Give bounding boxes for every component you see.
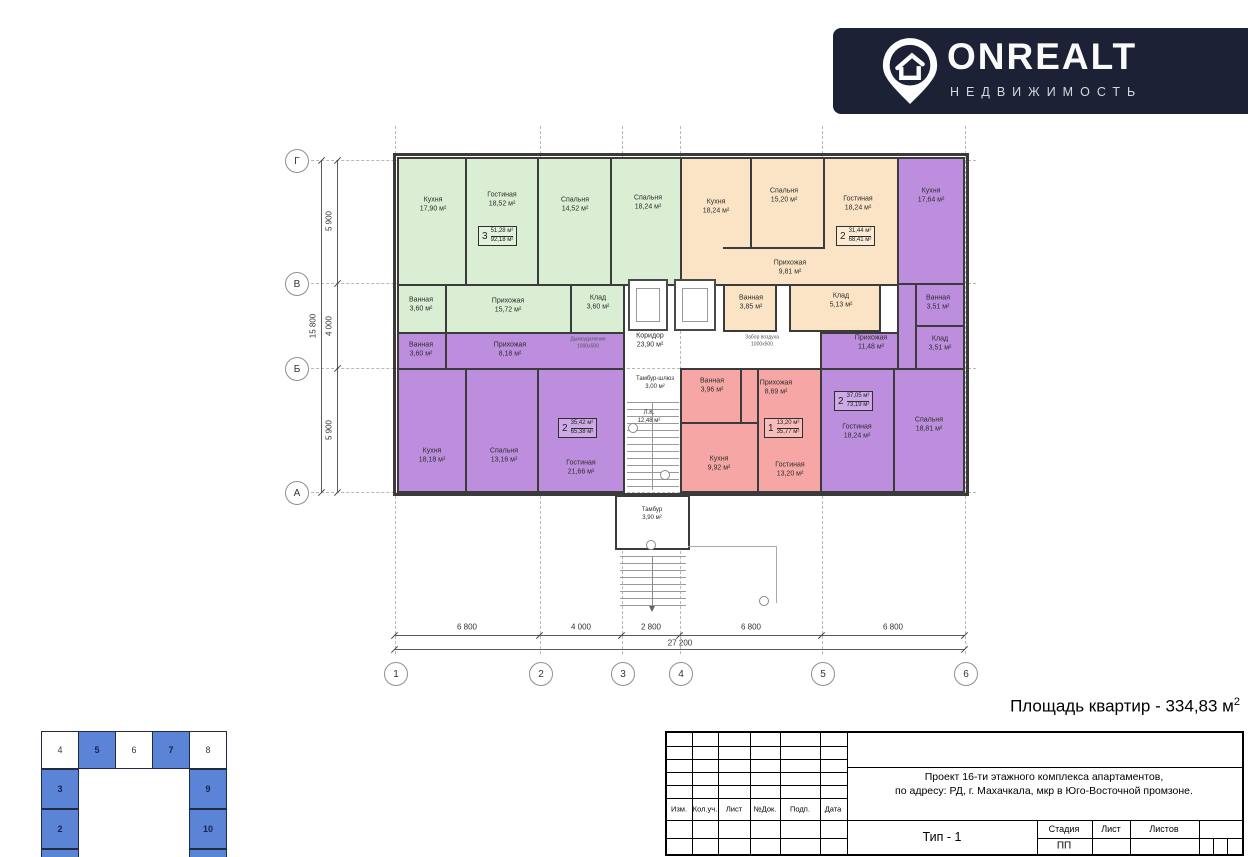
wall: [723, 247, 825, 249]
room-label: Ванная 3,96 м²: [700, 377, 724, 396]
wall: [537, 157, 539, 284]
project-title-line1: Проект 16-ти этажного комплекса апартаме…: [925, 771, 1163, 783]
minimap-cell-2: 2: [41, 809, 79, 849]
dimension-value: 6 800: [883, 623, 903, 632]
room-label: Клад 5,13 м²: [830, 292, 853, 311]
area-fraction: 51,28 м² 92,18 м²: [491, 228, 514, 244]
living-area: 35,42 м²: [571, 420, 594, 429]
brand-banner: ONREALT НЕДВИЖИМОСТЬ: [833, 28, 1248, 114]
room-label: Ванная 3,51 м²: [926, 294, 950, 313]
apartment-badge-purple-right: 2 37,05 м² 73,19 м²: [834, 391, 873, 411]
tb-header-izm: Изм.: [671, 805, 687, 814]
dimension-total: 15 800: [309, 314, 318, 338]
floor-plan-page: ONREALT НЕДВИЖИМОСТЬ: [0, 0, 1248, 857]
room-label: Тамбур-шлюз 3,00 м²: [636, 375, 674, 391]
total-area-text: Площадь квартир - 334,83 м: [1010, 697, 1234, 716]
total-area: 65,38 м²: [571, 429, 594, 437]
living-area: 31,44 м²: [849, 228, 872, 237]
rooms-count: 2: [838, 396, 844, 407]
axis-col-label: 5: [811, 662, 835, 686]
wall: [740, 368, 742, 424]
axis-col-label: 6: [954, 662, 978, 686]
total-area: 92,18 м²: [491, 237, 514, 245]
tb-line: [1130, 820, 1131, 854]
rooms-count: 1: [768, 423, 774, 434]
wall: [750, 157, 752, 247]
tb-header-data: Дата: [825, 805, 842, 814]
dimension-line: [321, 160, 322, 492]
tb-header-ndok: №Док.: [754, 805, 777, 814]
tb-line: [1199, 820, 1200, 854]
minimap-cell-8: 8: [189, 731, 227, 769]
room-label: Ванная 3,60 м²: [409, 296, 433, 315]
minimap-cell-10: 10: [189, 809, 227, 849]
axis-row-label: В: [285, 272, 309, 296]
rooms-count: 3: [482, 231, 488, 242]
axis-row-label: А: [285, 481, 309, 505]
room-label: Гостиная 18,24 м²: [842, 423, 871, 442]
dimension-value: 5 900: [325, 211, 334, 231]
plan-type-label: Тип - 1: [923, 830, 962, 844]
room-label: Кухня 17,90 м²: [420, 196, 447, 215]
entrance-canopy: [688, 546, 777, 603]
area-fraction: 37,05 м² 73,19 м²: [847, 393, 870, 409]
room-label: Прихожая 8,69 м²: [760, 379, 792, 398]
tb-line: [692, 733, 693, 854]
air-intake-note: Забор воздуха 1000х500: [745, 335, 779, 348]
room-label: Спальня 18,81 м²: [915, 416, 943, 435]
tb-line: [667, 820, 1242, 821]
entrance-arrow-icon: [649, 606, 655, 612]
dimension-line: [337, 160, 338, 492]
tb-line: [667, 798, 847, 799]
room-label: Ванная 3,85 м²: [739, 294, 763, 313]
minimap-cell-4: 4: [41, 731, 79, 769]
dimension-value: 2 800: [641, 623, 661, 632]
room-label: Коридор 23,90 м²: [636, 332, 664, 351]
tb-header-sheet: Лист: [1101, 824, 1121, 834]
dimension-value: 6 800: [741, 623, 761, 632]
wall: [897, 283, 965, 285]
axis-row-label: Г: [285, 149, 309, 173]
minimap-cell-9: 9: [189, 769, 227, 809]
apartment-badge-red: 1 13,20 м² 35,77 м²: [764, 418, 803, 438]
total-area-label: Площадь квартир - 334,83 м2: [960, 696, 1240, 717]
tb-line: [847, 767, 1242, 768]
area-fraction: 13,20 м² 35,77 м²: [777, 420, 800, 436]
room-label: Спальня 14,52 м²: [561, 196, 589, 215]
tb-header-podp: Подп.: [790, 805, 810, 814]
room-label: Кухня 9,92 м²: [708, 455, 731, 474]
stair-marker: [628, 423, 638, 433]
tb-line: [750, 733, 751, 854]
wall: [823, 157, 825, 247]
dimension-value: 5 900: [325, 420, 334, 440]
dimension-value: 6 800: [457, 623, 477, 632]
room-label: Спальня 18,24 м²: [634, 194, 662, 213]
room-label: Клад 3,51 м²: [929, 335, 952, 354]
entrance-marker: [759, 596, 769, 606]
entrance-marker: [646, 540, 656, 550]
tb-line: [1227, 838, 1228, 854]
room-label: Прихожая 11,48 м²: [855, 334, 887, 353]
room-label: Клад 3,60 м²: [587, 294, 610, 313]
room-label: Спальня 13,16 м²: [490, 447, 518, 466]
axis-row-label: Б: [285, 357, 309, 381]
smoke-exhaust-note: Дымоудаление 1000х500: [570, 337, 605, 350]
tb-line: [667, 785, 847, 786]
entrance-axis-line: [652, 556, 653, 606]
tb-header-stage: Стадия: [1049, 824, 1080, 834]
room-label: Спальня 15,20 м²: [770, 187, 798, 206]
room-label: Л.К. 12,48 м²: [638, 409, 661, 425]
area-fraction: 31,44 м² 68,41 м²: [849, 228, 872, 244]
dimension-total: 27 200: [668, 639, 692, 648]
living-area: 37,05 м²: [847, 393, 870, 402]
wall: [445, 284, 447, 334]
entrance-steps: [620, 556, 686, 606]
apartment-badge-orange: 2 31,44 м² 68,41 м²: [836, 226, 875, 246]
minimap-cell-partial: [41, 849, 79, 857]
total-area-sup: 2: [1234, 696, 1240, 708]
brand-name: ONREALT: [947, 36, 1137, 78]
axis-col-label: 1: [384, 662, 408, 686]
room-label: Кухня 18,24 м²: [703, 198, 730, 217]
wall: [465, 157, 467, 284]
stair-marker: [660, 470, 670, 480]
tb-line: [1037, 838, 1242, 839]
elevator-car: [682, 288, 708, 322]
tb-line: [1213, 838, 1214, 854]
axis-col-label: 3: [611, 662, 635, 686]
minimap-cell-3: 3: [41, 769, 79, 809]
wall: [757, 368, 759, 493]
axis-col-label: 4: [669, 662, 693, 686]
room-label: Прихожая 9,81 м²: [774, 259, 806, 278]
room-label: Гостиная 13,20 м²: [775, 461, 804, 480]
tb-line: [667, 772, 847, 773]
axis-col-label: 2: [529, 662, 553, 686]
room-label: Прихожая 8,18 м²: [494, 341, 526, 360]
room-label: Ванная 3,60 м²: [409, 341, 433, 360]
rooms-count: 2: [562, 423, 568, 434]
minimap-cell-6: 6: [115, 731, 153, 769]
apartment-badge-green: 3 51,28 м² 92,18 м²: [478, 226, 517, 246]
room-label: Гостиная 18,52 м²: [487, 191, 516, 210]
minimap-cell-5: 5: [78, 731, 116, 769]
area-fraction: 35,42 м² 65,38 м²: [571, 420, 594, 436]
elevator-shaft: [628, 279, 668, 331]
dimension-line: [395, 649, 965, 650]
stage-value: ПП: [1057, 841, 1071, 852]
wall: [610, 157, 612, 284]
tb-line: [1092, 820, 1093, 854]
tb-line: [718, 733, 719, 854]
rooms-count: 2: [840, 231, 846, 242]
tb-header-sheets: Листов: [1149, 824, 1178, 834]
house-pin-icon: [879, 36, 941, 106]
tb-header-koluch: Кол.уч.: [693, 805, 718, 814]
room-label: Гостиная 21,66 м²: [566, 459, 595, 478]
tb-header-list: Лист: [726, 805, 742, 814]
wall: [570, 284, 572, 334]
tb-line: [780, 733, 781, 854]
minimap-cell-partial: [189, 849, 227, 857]
minimap-cell-7: 7: [152, 731, 190, 769]
room-label: Прихожая 15,72 м²: [492, 297, 524, 316]
apartment-green-top: [397, 157, 682, 286]
tb-line: [667, 759, 847, 760]
wall: [445, 332, 447, 370]
total-area: 73,19 м²: [847, 402, 870, 410]
tb-line: [667, 746, 847, 747]
total-area: 68,41 м²: [849, 237, 872, 245]
living-area: 13,20 м²: [777, 420, 800, 429]
tb-line: [667, 838, 847, 839]
dimension-value: 4 000: [571, 623, 591, 632]
room-label: Кухня 18,18 м²: [419, 447, 446, 466]
room-label: Тамбур 3,90 м²: [642, 506, 662, 522]
total-area: 35,77 м²: [777, 429, 800, 437]
wall: [893, 368, 895, 493]
elevator-shaft: [674, 279, 716, 331]
apartment-badge-purple-left: 2 35,42 м² 65,38 м²: [558, 418, 597, 438]
title-block: Изм. Кол.уч. Лист №Док. Подп. Дата Проек…: [665, 731, 1244, 856]
wall: [915, 325, 965, 327]
wall: [465, 368, 467, 493]
tb-line: [1037, 820, 1038, 854]
wall: [537, 368, 539, 493]
elevator-car: [636, 288, 660, 322]
tb-line: [847, 733, 848, 854]
wall: [680, 422, 757, 424]
room-label: Гостиная 18,24 м²: [843, 195, 872, 214]
project-title-line2: по адресу: РД, г. Махачкала, мкр в Юго-В…: [895, 785, 1193, 797]
dimension-value: 4 000: [325, 316, 334, 336]
living-area: 51,28 м²: [491, 228, 514, 237]
room-label: Кухня 17,64 м²: [918, 187, 945, 206]
brand-subtitle: НЕДВИЖИМОСТЬ: [950, 85, 1142, 99]
tb-line: [820, 733, 821, 854]
